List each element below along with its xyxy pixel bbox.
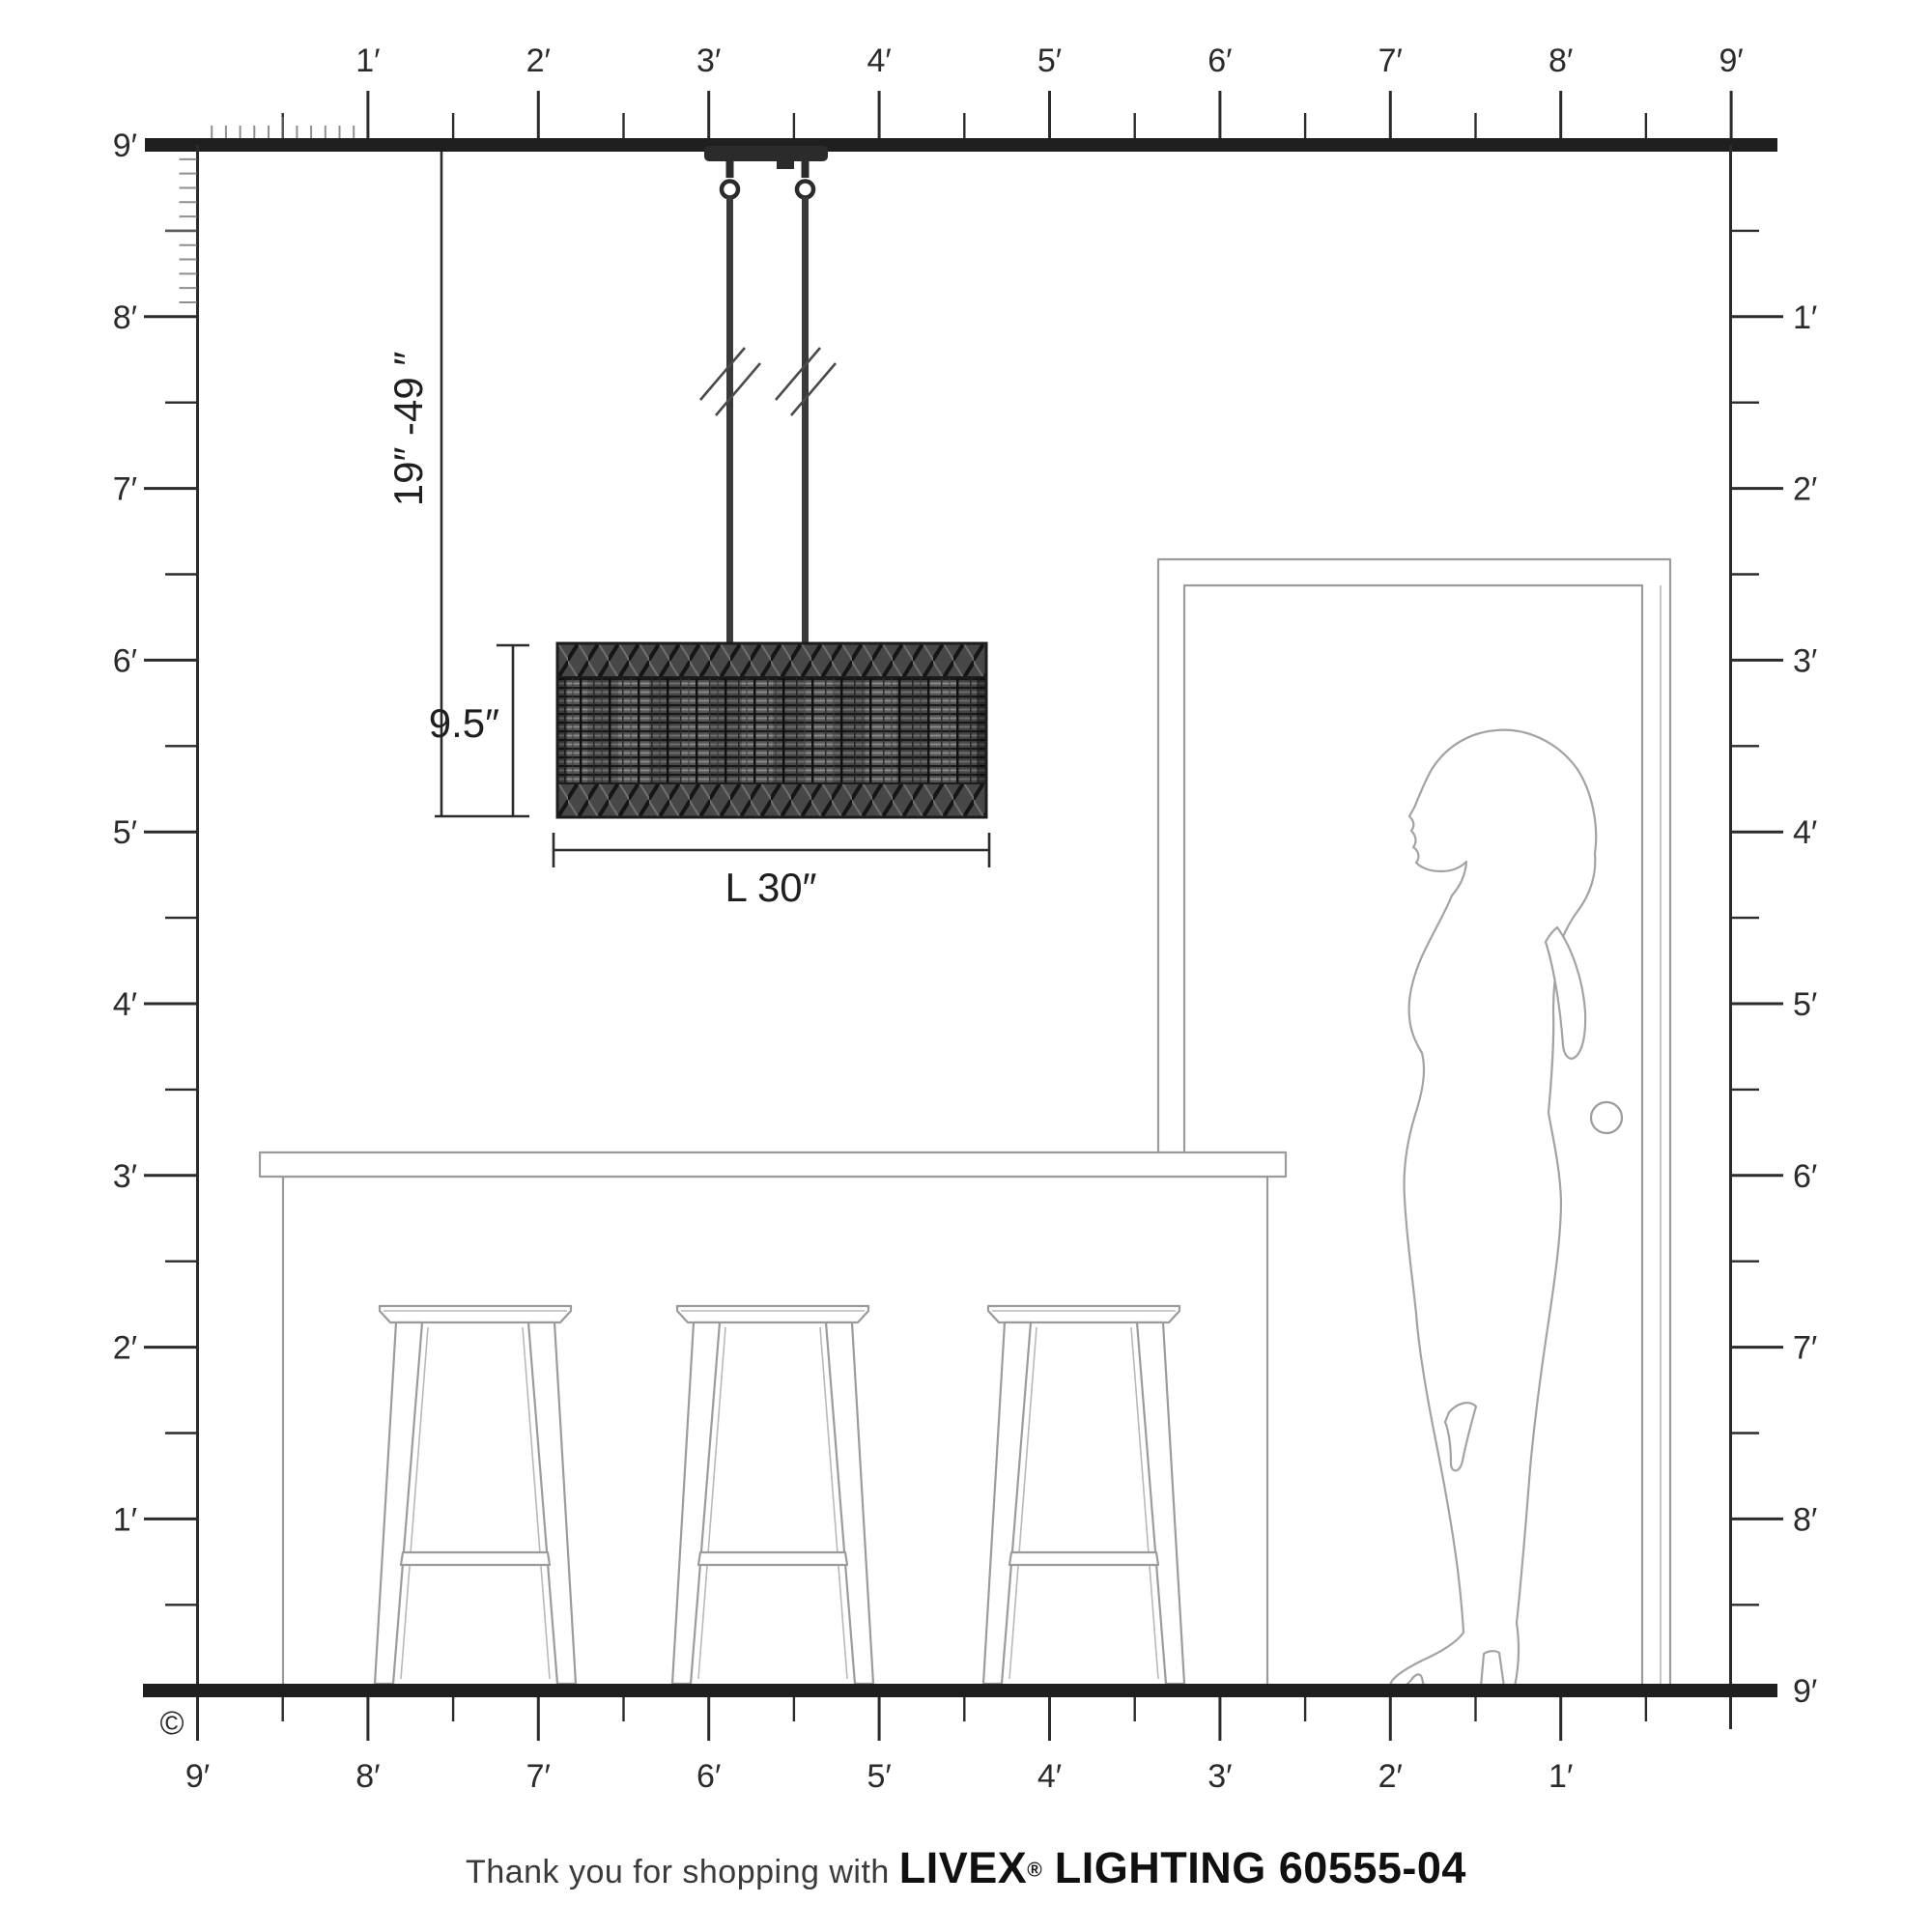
left-ruler-label: 2′ (113, 1330, 137, 1367)
top-ruler-label: 5′ (1037, 43, 1062, 79)
drum-shade (557, 643, 986, 817)
door-knob (1591, 1102, 1622, 1133)
top-ruler-label: 3′ (696, 43, 721, 79)
top-ruler-label: 7′ (1378, 43, 1403, 79)
top-ruler-label: 8′ (1548, 43, 1573, 79)
island-countertop (260, 1152, 1286, 1177)
top-ruler-label: 4′ (867, 43, 891, 79)
left-ruler-label: 4′ (113, 986, 137, 1023)
top-ruler-label: 6′ (1207, 43, 1232, 79)
bottom-ruler-label: 1′ (1548, 1758, 1573, 1795)
hanger-stem (802, 160, 810, 178)
canopy-nub (777, 160, 794, 169)
right-ruler: 1′2′3′4′5′6′7′8′9′ (1731, 231, 1818, 1710)
left-ruler-label: 3′ (113, 1158, 137, 1195)
bottom-ruler-label: 7′ (526, 1758, 551, 1795)
copyright-symbol: © (159, 1705, 184, 1742)
ceiling-line (145, 138, 1777, 152)
island-body (283, 1177, 1267, 1686)
right-ruler-label: 2′ (1793, 471, 1817, 508)
bottom-ruler-label: 9′ (185, 1758, 210, 1795)
top-ruler-label: 1′ (355, 43, 380, 79)
bottom-ruler-label: 4′ (1037, 1758, 1062, 1795)
bottom-ruler: 9′8′7′6′5′4′3′2′1′ (185, 1697, 1646, 1795)
scale-diagram-page: 1′2′3′4′5′6′7′8′9′ 9′8′7′6′5′4′3′2′1′ 1′… (0, 0, 1932, 1932)
left-ruler-label: 6′ (113, 642, 137, 679)
footer-thankyou-text: Thank you for shopping with (466, 1854, 899, 1890)
right-ruler-label: 1′ (1793, 299, 1817, 336)
shade-top-rim (557, 643, 986, 677)
footer-caption: Thank you for shopping with LIVEX® LIGHT… (0, 1843, 1932, 1893)
bottom-ruler-label: 5′ (867, 1758, 891, 1795)
right-ruler-label: 5′ (1793, 986, 1817, 1023)
top-ruler-label: 9′ (1719, 43, 1743, 79)
hanger-stem (726, 160, 734, 178)
brand-name: LIVEX (899, 1843, 1028, 1892)
bottom-ruler-label: 2′ (1378, 1758, 1403, 1795)
registered-mark: ® (1027, 1860, 1041, 1882)
left-ruler-label: 9′ (113, 128, 137, 164)
stem-rod (726, 197, 733, 645)
left-ruler-label: 5′ (113, 814, 137, 851)
drop-range-label: 19″ -49 ″ (385, 352, 431, 507)
floor-line (143, 1684, 1777, 1697)
rod-break-marks (700, 348, 836, 415)
shade-height-label: 9.5″ (429, 700, 499, 746)
shade-bottom-rim (557, 783, 986, 817)
hanger-ring (722, 182, 738, 198)
ceiling-canopy (704, 146, 828, 161)
right-ruler-label: 9′ (1793, 1673, 1817, 1710)
left-ruler-label: 1′ (113, 1501, 137, 1538)
hanger-ring (797, 182, 813, 198)
product-number: LIGHTING 60555-04 (1042, 1843, 1466, 1892)
right-ruler-label: 8′ (1793, 1501, 1817, 1538)
bottom-ruler-label: 8′ (355, 1758, 380, 1795)
top-ruler-label: 2′ (526, 43, 551, 79)
left-ruler: 9′8′7′6′5′4′3′2′1′ (113, 128, 197, 1605)
bottom-ruler-label: 3′ (1207, 1758, 1232, 1795)
right-ruler-label: 6′ (1793, 1158, 1817, 1195)
stem-rod (802, 197, 809, 645)
room-scale-diagram: 1′2′3′4′5′6′7′8′9′ 9′8′7′6′5′4′3′2′1′ 1′… (0, 0, 1932, 1932)
left-ruler-label: 8′ (113, 299, 137, 336)
bottom-ruler-label: 6′ (696, 1758, 721, 1795)
shade-length-label: L 30″ (724, 865, 816, 910)
pendant-light (557, 146, 986, 817)
top-ruler: 1′2′3′4′5′6′7′8′9′ (212, 43, 1744, 138)
right-ruler-label: 7′ (1793, 1330, 1817, 1367)
right-ruler-label: 3′ (1793, 642, 1817, 679)
right-ruler-label: 4′ (1793, 814, 1817, 851)
left-ruler-label: 7′ (113, 471, 137, 508)
